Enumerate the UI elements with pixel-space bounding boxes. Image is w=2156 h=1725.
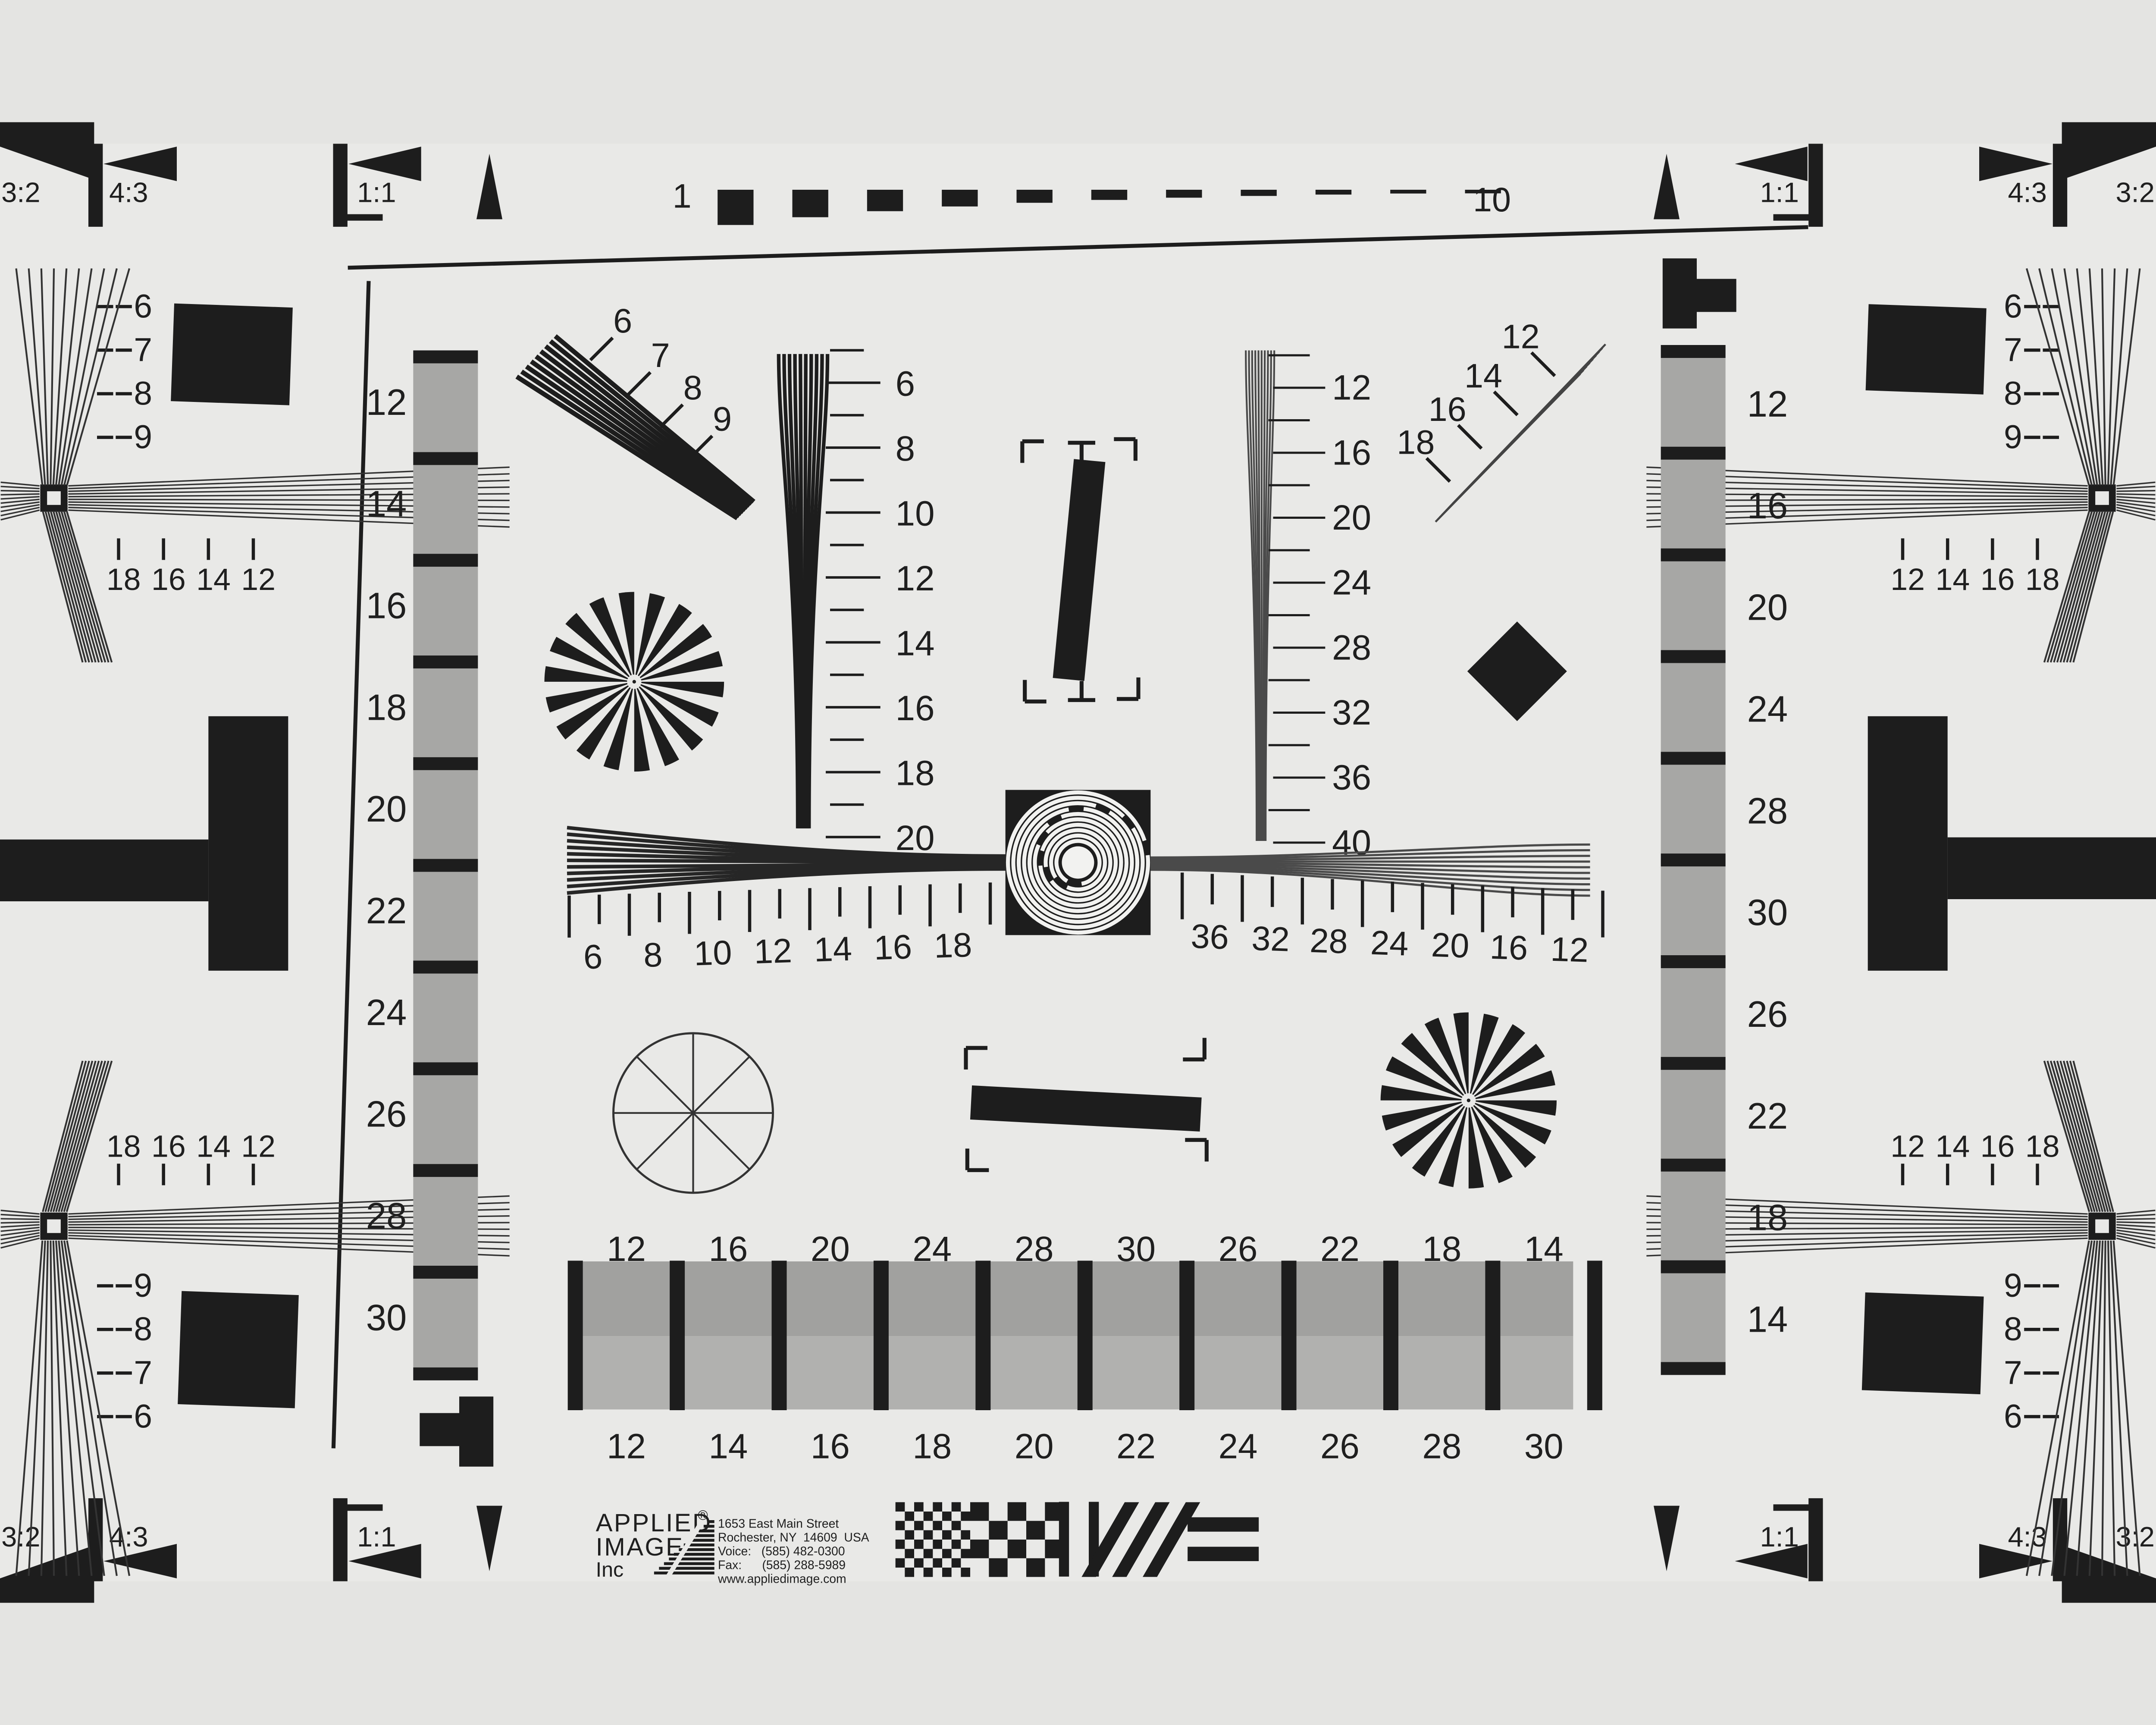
wedge-frequency-label: 8	[2004, 1311, 2022, 1348]
checker-fine	[914, 1521, 924, 1531]
checker-coarse	[1026, 1521, 1045, 1540]
step-separator	[413, 757, 478, 770]
checker-fine	[924, 1512, 933, 1521]
wedge-scale-label: 12	[1332, 368, 1371, 408]
ruler-step	[1390, 190, 1426, 194]
wedge-frequency-label: 9	[2004, 419, 2022, 456]
step-separator	[413, 554, 478, 567]
bar-foot	[347, 1504, 382, 1511]
wedge-frequency-label: 12	[1502, 317, 1540, 356]
address-line: 1653 East Main Street	[718, 1517, 839, 1531]
checker-fine	[961, 1549, 970, 1559]
address-line: Fax: (585) 288-5989	[718, 1559, 846, 1572]
tick-frequency-label: 14	[196, 1129, 231, 1164]
wedge-scale-label: 14	[896, 624, 935, 663]
wedge-scale-label: 6	[896, 364, 915, 404]
ruler-end-label: 10	[1473, 180, 1511, 219]
left-grayscale-column: 12141618202224262830	[366, 351, 493, 1467]
wedge-scale-label: 8	[896, 429, 915, 468]
ruler-number: 16	[873, 927, 912, 967]
cell-frequency-label: 16	[709, 1229, 748, 1269]
aspect-ratio-label: 4:3	[109, 176, 148, 208]
checker-fine	[896, 1502, 905, 1512]
step-separator	[1661, 650, 1726, 663]
aspect-ratio-label: 1:1	[357, 176, 396, 208]
ruler-number: 10	[693, 933, 733, 972]
ruler-step	[718, 190, 753, 225]
registration-bar	[88, 144, 103, 226]
checker-fine	[914, 1540, 924, 1549]
ruler-step	[1316, 190, 1351, 194]
tick-frequency-label: 16	[151, 562, 186, 597]
gray-step	[413, 364, 478, 452]
checker-coarse	[970, 1540, 989, 1558]
checker-fine	[933, 1558, 942, 1568]
wedge-frequency-label: 7	[134, 332, 152, 368]
checker-fine	[914, 1502, 924, 1512]
cell-separator	[1383, 1261, 1398, 1410]
tick-frequency-label: 18	[107, 1129, 141, 1164]
checker-fine	[933, 1521, 942, 1531]
cell-separator	[975, 1261, 990, 1410]
wedge-scale-label: 32	[1332, 693, 1371, 732]
tick-frequency-label: 12	[1890, 1129, 1925, 1164]
black-square	[178, 1291, 299, 1408]
aspect-ratio-label: 1:1	[357, 1521, 396, 1552]
checker-fine	[905, 1568, 914, 1577]
column-key	[459, 1396, 493, 1467]
wedge-frequency-label: 9	[134, 1267, 152, 1304]
registration-bar	[333, 144, 348, 226]
checker-fine	[933, 1502, 942, 1512]
cell-separator	[1078, 1261, 1093, 1410]
checker-fine	[896, 1558, 905, 1568]
step-separator	[1661, 1159, 1726, 1172]
gray-step	[1661, 561, 1726, 650]
step-separator	[413, 1062, 478, 1075]
ruler-step	[867, 190, 903, 211]
step-separator	[1661, 1362, 1726, 1375]
tick-frequency-label: 16	[1981, 1129, 2015, 1164]
crosshair-center	[2095, 491, 2109, 505]
checker-fine	[942, 1568, 952, 1577]
wedge-scale-label: 20	[1332, 498, 1371, 537]
wedge-scale-label: 28	[1332, 628, 1371, 667]
wedge-scale-label: 20	[896, 819, 935, 858]
checker-fine	[924, 1530, 933, 1540]
column-key	[1663, 258, 1697, 329]
gray-step	[1661, 1273, 1726, 1362]
wedge-frequency-label: 16	[1429, 390, 1467, 428]
tick-frequency-label: 14	[1935, 1129, 1970, 1164]
checker-fine	[896, 1540, 905, 1549]
bar-foot	[1774, 214, 1809, 221]
crosshair-center	[47, 491, 61, 505]
wedge-frequency-label: 8	[134, 1311, 152, 1348]
registration-bar	[333, 1498, 348, 1581]
checker-fine	[961, 1568, 970, 1577]
gray-step	[413, 567, 478, 655]
cell-frequency-label: 26	[1320, 1427, 1360, 1466]
wedge-frequency-label: 7	[2004, 332, 2022, 368]
checker-fine	[924, 1568, 933, 1577]
checker-fine	[952, 1558, 961, 1568]
step-separator	[1661, 447, 1726, 460]
logo-stripe	[704, 1525, 714, 1528]
logo-stripe	[694, 1534, 714, 1537]
cell-frequency-label: 18	[1422, 1229, 1461, 1269]
wedge-frequency-label: 6	[2004, 1398, 2022, 1435]
ruler-number: 12	[1550, 930, 1589, 969]
ruler-start-label: 1	[673, 177, 692, 215]
checker-coarse	[1008, 1502, 1026, 1521]
cell-frequency-label: 28	[1422, 1427, 1461, 1466]
step-frequency-label: 30	[366, 1297, 407, 1338]
horizontal-bar	[1188, 1517, 1259, 1531]
cell-frequency-label: 12	[607, 1229, 646, 1269]
checker-coarse	[1008, 1540, 1026, 1558]
step-separator	[413, 655, 478, 668]
ruler-step	[1241, 190, 1277, 196]
step-frequency-label: 20	[366, 789, 407, 830]
ruler-number: 14	[813, 929, 852, 969]
checker-coarse	[989, 1558, 1007, 1577]
gray-step	[413, 974, 478, 1063]
checker-fine	[942, 1512, 952, 1521]
step-frequency-label: 22	[366, 891, 407, 931]
cell-frequency-label: 18	[912, 1427, 952, 1466]
step-separator	[1661, 955, 1726, 968]
registration-bar	[1808, 1498, 1823, 1581]
wedge-scale-label: 36	[1332, 758, 1371, 797]
address-line: Rochester, NY 14609 USA	[718, 1531, 869, 1544]
tick-frequency-label: 18	[2025, 562, 2060, 597]
wedge-frequency-label: 8	[683, 368, 702, 407]
cell-separator	[1587, 1261, 1602, 1410]
cell-frequency-label: 24	[912, 1229, 952, 1269]
aspect-ratio-label: 1:1	[1760, 176, 1799, 208]
checker-fine	[952, 1540, 961, 1549]
cell-frequency-label: 20	[811, 1229, 850, 1269]
logo-stripe	[664, 1562, 714, 1565]
checker-fine	[924, 1549, 933, 1559]
aspect-ratio-label: 4:3	[109, 1521, 148, 1552]
wedge-frequency-label: 8	[2004, 376, 2022, 412]
logo-stripe	[708, 1520, 714, 1523]
step-frequency-label: 22	[1747, 1096, 1788, 1137]
cell-separator	[1485, 1261, 1500, 1410]
gray-step	[413, 668, 478, 757]
aspect-ratio-label: 3:2	[1, 176, 40, 208]
step-frequency-label: 30	[1747, 892, 1788, 933]
step-separator	[413, 859, 478, 872]
resolution-test-chart: 3:24:31:11:14:33:23:24:31:11:14:33:21106…	[0, 0, 2156, 1725]
step-frequency-label: 24	[366, 992, 407, 1033]
wedge-frequency-label: 7	[2004, 1355, 2022, 1391]
step-frequency-label: 14	[1747, 1299, 1788, 1340]
gray-step	[1661, 968, 1726, 1057]
cell-separator	[1282, 1261, 1297, 1410]
wedge-frequency-label: 9	[713, 399, 732, 438]
cell-frequency-label: 30	[1524, 1427, 1564, 1466]
wedge-frequency-label: 6	[134, 288, 152, 325]
wedge-scale-label: 18	[896, 754, 935, 793]
step-separator	[1661, 853, 1726, 866]
cell-frequency-label: 24	[1219, 1427, 1258, 1466]
gray-step	[1661, 663, 1726, 752]
cell-frequency-label: 26	[1219, 1229, 1258, 1269]
ruler-number: 16	[1489, 928, 1529, 967]
checker-coarse	[1026, 1558, 1045, 1577]
checker-fine	[905, 1530, 914, 1540]
cell-separator	[874, 1261, 889, 1410]
t-crossbar	[208, 716, 288, 971]
step-frequency-label: 14	[366, 484, 407, 525]
step-frequency-label: 16	[366, 586, 407, 627]
gray-step	[1661, 1070, 1726, 1159]
step-separator	[413, 452, 478, 465]
checker-coarse	[970, 1502, 989, 1521]
gray-step	[413, 1177, 478, 1266]
checker-fine	[942, 1549, 952, 1559]
cell-frequency-label: 14	[709, 1427, 748, 1466]
column-key	[420, 1413, 459, 1446]
step-separator	[413, 1367, 478, 1380]
gray-step	[1661, 460, 1726, 549]
tick-frequency-label: 14	[196, 562, 231, 597]
ruler-number: 32	[1251, 919, 1290, 959]
step-frequency-label: 12	[1747, 384, 1788, 425]
black-square	[171, 304, 293, 405]
step-separator	[413, 961, 478, 974]
cell-separator	[771, 1261, 787, 1410]
wedge-frequency-label: 8	[134, 376, 152, 412]
cell-separator	[670, 1261, 685, 1410]
gray-step	[413, 465, 478, 554]
cell-frequency-label: 22	[1320, 1229, 1360, 1269]
tick-frequency-label: 18	[2025, 1129, 2060, 1164]
step-frequency-label: 16	[1747, 486, 1788, 527]
cell-separator	[568, 1261, 583, 1410]
step-frequency-label: 26	[1747, 994, 1788, 1035]
wedge-frequency-label: 9	[2004, 1267, 2022, 1304]
chart-canvas: 3:24:31:11:14:33:23:24:31:11:14:33:21106…	[0, 0, 2156, 1725]
aspect-ratio-label: 4:3	[2008, 1521, 2046, 1552]
cell-frequency-label: 30	[1116, 1229, 1156, 1269]
column-key	[1697, 279, 1736, 312]
cell-frequency-label: 20	[1015, 1427, 1054, 1466]
brand-suffix: Inc	[596, 1558, 624, 1581]
cell-frequency-label: 16	[811, 1427, 850, 1466]
tick-frequency-label: 16	[1981, 562, 2015, 597]
t-crossbar	[1868, 716, 1948, 971]
t-stem	[0, 840, 208, 901]
step-frequency-label: 18	[366, 687, 407, 728]
wedge-frequency-label: 6	[134, 1398, 152, 1435]
step-frequency-label: 18	[1747, 1198, 1788, 1239]
wedge-frequency-label: 9	[134, 419, 152, 456]
black-square	[1862, 1292, 1984, 1394]
gray-step	[1661, 866, 1726, 955]
ruler-number: 12	[753, 931, 793, 971]
aspect-ratio-label: 3:2	[2115, 176, 2154, 208]
cell-separator	[1179, 1261, 1194, 1410]
cell-frequency-label: 28	[1015, 1229, 1054, 1269]
gray-step	[1661, 358, 1726, 447]
checker-fine	[896, 1521, 905, 1531]
logo-stripe	[659, 1567, 714, 1570]
ruler-number: 24	[1370, 923, 1409, 963]
step-frequency-label: 26	[366, 1094, 407, 1135]
ruler-step	[942, 190, 978, 207]
checker-fine	[914, 1558, 924, 1568]
tick-frequency-label: 14	[1935, 562, 1970, 597]
wedge-scale-label: 16	[896, 689, 935, 728]
ruler-step	[1091, 190, 1127, 200]
tick-frequency-label: 12	[241, 562, 276, 597]
wedge-frequency-label: 6	[613, 301, 632, 340]
registered-mark: ®	[698, 1507, 708, 1523]
checker-fine	[933, 1540, 942, 1549]
gray-step	[1661, 765, 1726, 853]
wedge-frequency-label: 6	[2004, 288, 2022, 325]
step-separator	[413, 1164, 478, 1177]
brand-name: IMAGE	[596, 1533, 684, 1561]
registration-bar	[1808, 144, 1823, 226]
address-line: Voice: (585) 482-0300	[718, 1545, 845, 1559]
step-separator	[413, 351, 478, 364]
tick-frequency-label: 16	[151, 1129, 186, 1164]
step-frequency-label: 12	[366, 382, 407, 423]
wedge-scale-label: 16	[1332, 433, 1371, 472]
wedge-frequency-label: 18	[1397, 423, 1435, 461]
step-separator	[1661, 752, 1726, 765]
ruler-step	[1166, 190, 1202, 198]
ruler-number: 28	[1309, 921, 1348, 961]
aspect-ratio-label: 4:3	[2008, 176, 2046, 208]
step-separator	[1661, 345, 1726, 358]
wedge-frequency-label: 7	[651, 336, 670, 374]
logo-stripe	[654, 1571, 714, 1574]
wedge-scale-label: 12	[896, 559, 935, 598]
step-separator	[413, 1266, 478, 1279]
address-line: www.appliedimage.com	[718, 1572, 846, 1586]
ruler-step	[1017, 190, 1053, 203]
checker-fine	[961, 1530, 970, 1540]
horizontal-bar	[1188, 1547, 1259, 1561]
step-separator	[1661, 549, 1726, 561]
wedge-frequency-label: 7	[134, 1355, 152, 1391]
step-frequency-label: 24	[1747, 689, 1788, 730]
cell-frequency-label: 22	[1116, 1427, 1156, 1466]
segmented-circle	[614, 1033, 773, 1193]
cell-frequency-label: 14	[1524, 1229, 1564, 1269]
cell-frequency-label: 12	[607, 1427, 646, 1466]
ruler-number: 8	[643, 935, 663, 974]
wedge-scale-label: 10	[896, 494, 935, 533]
checker-fine	[952, 1502, 961, 1512]
ruler-number: 18	[933, 925, 972, 965]
step-frequency-label: 28	[366, 1196, 407, 1237]
checker-fine	[905, 1512, 914, 1521]
bar-foot	[347, 214, 382, 221]
tick-frequency-label: 18	[107, 562, 141, 597]
step-frequency-label: 20	[1747, 587, 1788, 628]
wedge-frequency-label: 14	[1464, 356, 1502, 395]
step-separator	[1661, 1057, 1726, 1070]
checker-fine	[905, 1549, 914, 1559]
black-square	[1866, 304, 1987, 394]
step-separator	[1661, 1261, 1726, 1273]
tick-frequency-label: 12	[1890, 562, 1925, 597]
wedge-scale-label: 24	[1332, 563, 1371, 602]
checker-fine	[961, 1512, 970, 1521]
crosshair-center	[2095, 1220, 2109, 1233]
ruler-number: 6	[583, 937, 603, 976]
ruler-number: 20	[1431, 925, 1470, 965]
checker-fine	[952, 1521, 961, 1531]
tick-frequency-label: 12	[241, 1129, 276, 1164]
gray-step	[413, 1075, 478, 1164]
gray-step	[1661, 1172, 1726, 1261]
crosshair-center	[47, 1220, 61, 1233]
ruler-step	[793, 190, 828, 217]
ruler-number: 36	[1190, 917, 1229, 957]
bar-foot	[1774, 1504, 1809, 1511]
step-frequency-label: 28	[1747, 790, 1788, 831]
gray-step	[413, 872, 478, 961]
checker-coarse	[989, 1521, 1007, 1540]
gray-step	[413, 770, 478, 859]
checker-fine	[942, 1530, 952, 1540]
t-stem	[1948, 837, 2156, 899]
vertical-bar	[1059, 1502, 1069, 1577]
logo-stripe	[699, 1530, 714, 1533]
gray-step	[413, 1279, 478, 1367]
